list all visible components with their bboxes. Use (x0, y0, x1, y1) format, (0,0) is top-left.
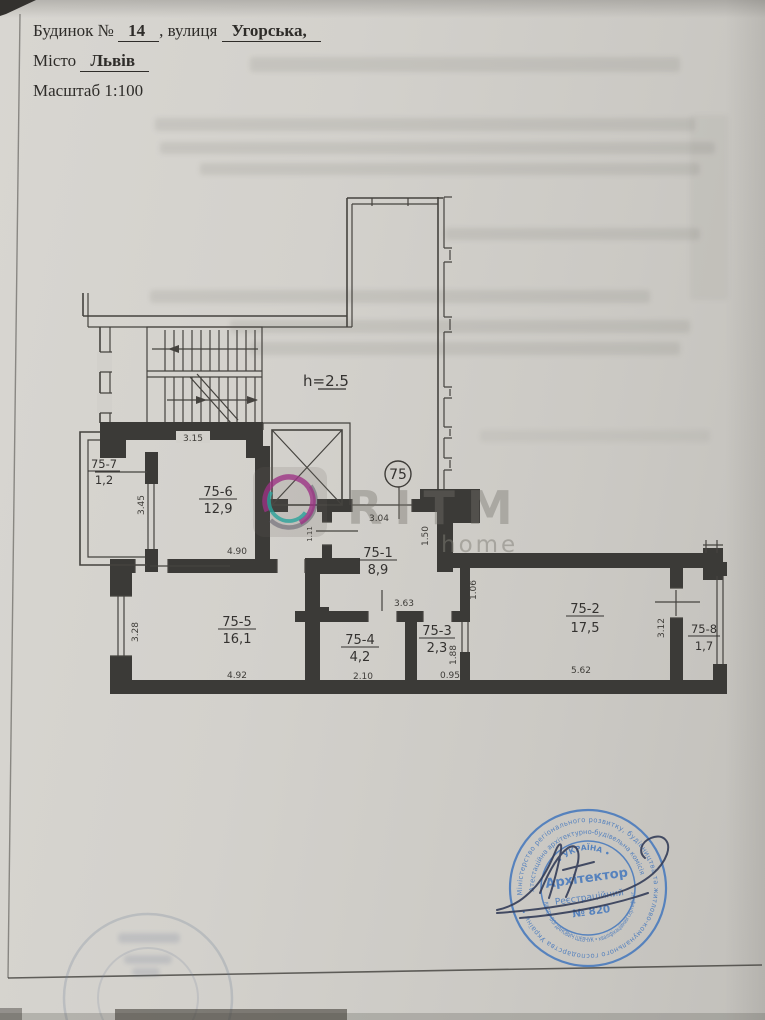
room-label-75-8: 75-8 1,7 (688, 622, 720, 653)
dimension-4-90: 4.90 (227, 547, 247, 557)
staircase (147, 327, 262, 423)
bleedthrough-stamp (64, 914, 232, 1020)
svg-text:16,1: 16,1 (223, 632, 252, 647)
apartment-walls (100, 422, 727, 694)
svg-text:75-8: 75-8 (691, 622, 717, 636)
photo-bottom-edge (0, 1008, 765, 1020)
svg-text:1,7: 1,7 (695, 639, 713, 653)
svg-text:12,9: 12,9 (204, 502, 233, 517)
dimension-1-50: 1.50 (421, 526, 431, 546)
svg-text:75-5: 75-5 (222, 615, 252, 630)
scanned-floorplan-page: { "header": { "line1_label1": "Будинок №… (0, 0, 765, 1020)
room-label-75-4: 75-4 4,2 (341, 633, 379, 665)
svg-text:75-1: 75-1 (363, 546, 393, 561)
dimension-5-62: 5.62 (571, 666, 591, 676)
dimension-1-06: 1.06 (469, 580, 479, 600)
svg-text:8,9: 8,9 (368, 563, 389, 578)
corridor-walls (83, 197, 452, 489)
svg-text:4,2: 4,2 (350, 650, 371, 665)
svg-text:75-7: 75-7 (91, 457, 117, 471)
apartment-thin-lines (80, 423, 723, 664)
svg-text:17,5: 17,5 (571, 621, 600, 636)
dimension-3-15: 3.15 (183, 434, 203, 444)
floor-plan-svg: RITM home 75-7 1,2 75-6 12,9 75-1 8,9 75… (0, 0, 765, 1020)
svg-text:75: 75 (389, 467, 407, 483)
dimension-1-11: 1.11 (306, 526, 314, 542)
architect-stamp: Міністерство регіонального розвитку, буд… (500, 800, 676, 976)
dimension-3-04: 3.04 (369, 514, 389, 524)
dimension-3-28: 3.28 (131, 622, 141, 642)
dimension-3-45: 3.45 (137, 495, 147, 515)
svg-text:75-2: 75-2 (570, 602, 600, 617)
room-label-75-2: 75-2 17,5 (566, 602, 604, 636)
dimension-1-88: 1.88 (449, 645, 459, 665)
svg-text:1,2: 1,2 (95, 473, 113, 487)
svg-text:h=2.5: h=2.5 (303, 372, 349, 390)
window-bracket-icons (444, 197, 452, 470)
room-label-75-6: 75-6 12,9 (199, 485, 237, 517)
watermark-brand: RITM (347, 481, 525, 535)
svg-text:75-6: 75-6 (203, 485, 233, 500)
dimension-3-63: 3.63 (394, 599, 414, 609)
dimension-3-12: 3.12 (657, 618, 667, 638)
svg-text:75-4: 75-4 (345, 633, 375, 648)
room-label-75-5: 75-5 16,1 (218, 615, 256, 647)
dimension-2-10: 2.10 (353, 672, 373, 682)
height-note: h=2.5 (303, 372, 349, 390)
svg-text:2,3: 2,3 (427, 641, 448, 656)
dimension-4-92: 4.92 (227, 671, 247, 681)
dimension-0-95: 0.95 (440, 671, 460, 681)
stair-direction-arrow-icon (152, 345, 258, 404)
watermark-sub: home (441, 532, 518, 558)
room-label-75-1: 75-1 8,9 (359, 546, 397, 578)
svg-text:75-3: 75-3 (422, 624, 452, 639)
